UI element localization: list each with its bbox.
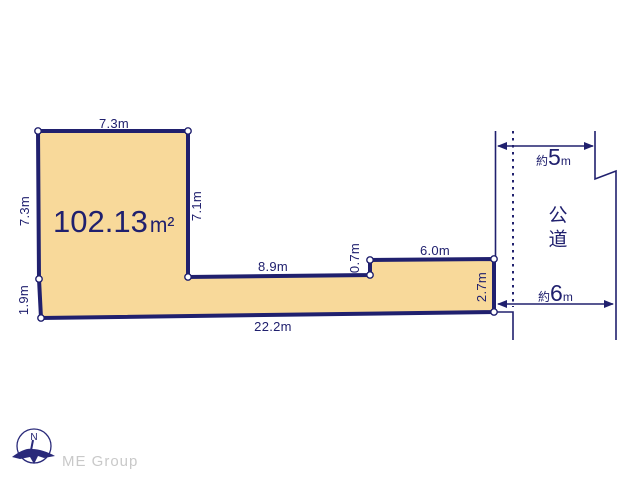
dim-label-right-lower: 2.7m (474, 272, 489, 302)
dim-label-square-right: 7.1m (189, 191, 204, 221)
dim-label-left-upper: 7.3m (17, 196, 32, 226)
compass-icon: N (12, 429, 55, 464)
dim-label-strip-top: 6.0m (420, 243, 450, 258)
road-width-label-bottom: 約6m (538, 280, 573, 306)
vertex-dot (35, 128, 41, 134)
dim-label-middle: 8.9m (258, 259, 288, 274)
road-right-edge-line (595, 131, 616, 340)
land-plot-diagram: 約5m 約6m 公道 102.13m² 7.3m 7.3m 7.1m 8.9m … (0, 0, 640, 480)
vertex-dot (491, 309, 497, 315)
dim-label-left-lower: 1.9m (16, 285, 31, 315)
vertex-dot (185, 274, 191, 280)
vertex-dot (185, 128, 191, 134)
vertex-dot (367, 257, 373, 263)
vertex-dot (367, 272, 373, 278)
dim-label-bottom: 22.2m (254, 319, 292, 334)
plot-drawing: 約5m 約6m 公道 102.13m² 7.3m 7.3m 7.1m 8.9m … (0, 0, 640, 480)
watermark-logo-text: ME Group (62, 453, 138, 470)
vertex-dot (36, 276, 42, 282)
vertex-dot (491, 256, 497, 262)
dim-label-step: 0.7m (347, 243, 362, 273)
road-name-label: 公道 (546, 205, 568, 253)
adjacent-boundary-line (494, 312, 513, 340)
road-width-label-top: 約5m (536, 144, 571, 170)
vertex-dot (38, 315, 44, 321)
compass-north-label: N (30, 432, 37, 443)
dim-label-top: 7.3m (99, 116, 129, 131)
